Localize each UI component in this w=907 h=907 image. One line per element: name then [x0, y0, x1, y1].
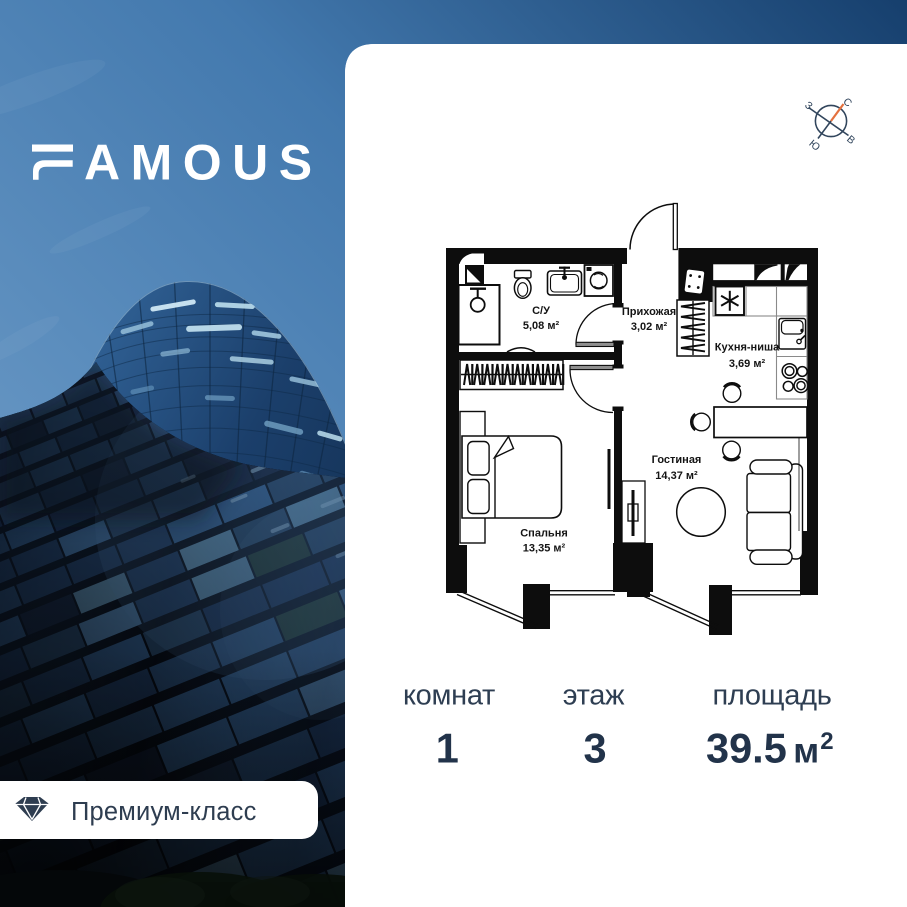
svg-text:39.5м2: 39.5м2 [706, 725, 834, 772]
svg-text:3,69 м²: 3,69 м² [729, 358, 766, 370]
svg-text:13,35 м²: 13,35 м² [523, 543, 566, 555]
svg-text:площадь: площадь [713, 680, 832, 712]
svg-text:3,02 м²: 3,02 м² [631, 321, 668, 333]
svg-text:Прихожая: Прихожая [622, 306, 676, 318]
svg-text:Премиум-класс: Премиум-класс [71, 798, 257, 826]
svg-text:14,37 м²: 14,37 м² [655, 470, 698, 482]
svg-text:1: 1 [436, 725, 459, 772]
svg-text:этаж: этаж [563, 680, 625, 712]
svg-text:3: 3 [583, 725, 606, 772]
svg-text:5,08 м²: 5,08 м² [523, 320, 560, 332]
svg-text:Спальня: Спальня [520, 528, 568, 540]
svg-text:Гостиная: Гостиная [652, 454, 702, 466]
svg-text:Кухня-ниша: Кухня-ниша [715, 342, 780, 354]
svg-text:С/У: С/У [532, 305, 550, 317]
svg-text:AMOUS: AMOUS [84, 135, 323, 191]
svg-text:комнат: комнат [403, 680, 495, 712]
